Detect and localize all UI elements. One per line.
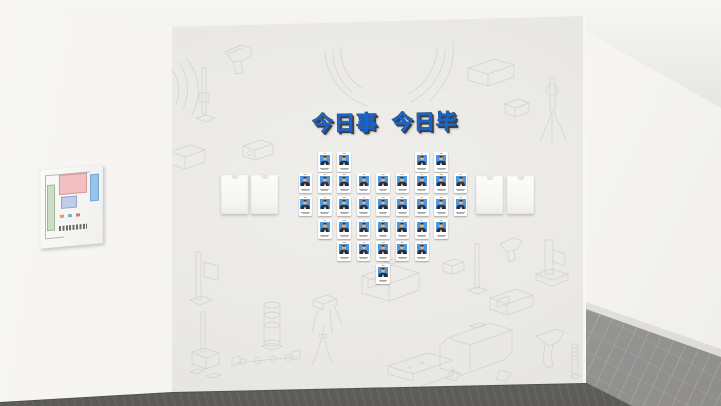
staff-badge-card [415,196,429,216]
sketch-column-machine-right [536,240,568,286]
badge-photo [339,155,349,166]
person-head [342,245,346,250]
badge-text-line [380,213,387,214]
badge-photo [378,222,388,233]
badge-text-line [341,258,348,259]
badge-text-line [418,190,425,191]
badge-photo [339,199,349,210]
person-shirt [343,251,345,254]
badge-photo [320,199,330,210]
staff-badge-card [396,219,410,239]
staff-badge-card [337,241,351,261]
badge-photo [417,222,427,233]
plan-legend-dot [68,214,72,217]
person-head [400,177,404,182]
badge-text-line [399,236,406,237]
sketch-scanner-gun-bottom [536,329,564,368]
person-head [381,200,385,205]
person-head [381,223,385,228]
person-head [400,223,404,228]
sketch-printer-box [362,259,419,301]
staff-badge-card [357,173,371,193]
person-shirt [382,183,384,186]
person-head [439,223,443,228]
person-head [400,200,404,205]
badge-text-line [399,213,406,214]
sketch-linkage-mechanism [232,350,300,366]
person-head [303,177,307,182]
badge-photo [378,267,388,278]
staff-badge-card [434,173,448,193]
badge-photo [397,176,407,187]
person-shirt [382,251,384,254]
badge-text-line [380,258,387,259]
badge-text-line [302,190,309,191]
person-shirt [382,229,384,232]
badge-photo [300,176,310,187]
badge-text-line [360,236,367,237]
person-head [362,200,366,205]
badge-photo [378,199,388,210]
badge-photo [378,244,388,255]
person-shirt [460,183,462,186]
person-shirt [421,229,423,232]
badge-photo [320,155,330,166]
badge-photo [397,199,407,210]
sketch-pole-t-stand [468,244,487,294]
badge-photo [436,176,446,187]
staff-badge-card [318,219,332,239]
person-head [400,245,404,250]
badge-text-line [399,190,406,191]
staff-badge-card [357,241,371,261]
plan-legend-dot [76,214,80,217]
badge-photo [436,199,446,210]
person-head [420,156,424,161]
badge-photo [417,244,427,255]
badge-text-line [321,213,328,214]
badge-text-line [360,190,367,191]
staff-badge-card [318,152,332,172]
sketch-column-machine-far-left [190,252,218,305]
showroom-scene: 今日事 今日毕 [0,0,721,406]
person-shirt [401,251,403,254]
staff-badge-card [415,173,429,193]
badge-photo [359,244,369,255]
staff-badge-card [434,152,448,172]
person-head [323,200,327,205]
person-shirt [304,206,306,209]
badge-text-line [418,236,425,237]
person-shirt [343,183,345,186]
person-head [323,177,327,182]
sketch-scanner-gun-right [500,238,522,262]
staff-badge-card [337,173,351,193]
sketch-big-case [440,323,512,382]
person-shirt [324,183,326,186]
sketch-generator-box [490,289,533,315]
person-shirt [440,229,442,232]
badge-photo [397,222,407,233]
person-head [323,156,327,161]
badge-photo [436,222,446,233]
person-shirt [363,206,365,209]
person-head [439,200,443,205]
person-shirt [363,183,365,186]
person-head [420,200,424,205]
person-shirt [363,251,365,254]
sketch-handheld-scanner-top [225,45,252,74]
staff-badge-card [337,219,351,239]
badge-text-line [380,281,387,282]
staff-badge-card [415,152,429,172]
staff-badge-card [396,173,410,193]
staff-badge-card [415,219,429,239]
plan-caption-text [59,224,87,231]
badge-photo [339,244,349,255]
sketch-tripod-instrument-right [540,78,566,142]
plan-pink-zone [59,173,87,195]
staff-badge-card [376,241,390,261]
staff-badge-card [318,196,332,216]
badge-text-line [418,169,425,170]
person-head [342,177,346,182]
person-shirt [382,274,384,277]
badge-text-line [457,190,464,191]
badge-text-line [418,213,425,214]
person-shirt [421,183,423,186]
staff-badge-card [337,196,351,216]
badge-photo [300,199,310,210]
badge-text-line [360,213,367,214]
badge-photo [320,222,330,233]
badge-text-line [438,190,445,191]
sketch-cylinder-coil [262,302,282,350]
badge-text-line [302,213,309,214]
evacuation-floor-plan-frame [40,164,103,249]
person-shirt [401,183,403,186]
person-head [439,177,443,182]
badge-text-line [457,213,464,214]
staff-badge-card [357,219,371,239]
staff-badge-card [357,196,371,216]
plan-blue-room [61,196,77,209]
sketch-small-box [443,259,464,274]
person-shirt [421,251,423,254]
badge-photo [417,199,427,210]
sketch-tripod-bottom [312,324,332,366]
person-head [420,245,424,250]
badge-photo [359,176,369,187]
badge-photo [417,155,427,166]
person-head [342,200,346,205]
person-head [323,223,327,228]
person-shirt [440,162,442,165]
person-head [459,200,463,205]
sketch-flat-case [388,353,453,389]
staff-badge-card [376,196,390,216]
wall-slogan-title: 今日事 今日毕 [300,106,470,138]
person-head [420,223,424,228]
person-shirt [324,162,326,165]
person-shirt [440,183,442,186]
staff-badge-card [376,264,390,284]
person-head [459,177,463,182]
person-shirt [363,229,365,232]
plan-legend-dot [60,215,64,218]
person-shirt [401,206,403,209]
badge-photo [339,176,349,187]
person-shirt [324,229,326,232]
staff-badge-card [415,241,429,261]
person-shirt [382,206,384,209]
person-head [362,177,366,182]
badge-text-line [418,258,425,259]
person-shirt [421,162,423,165]
sketch-screw-pole [570,344,581,379]
person-head [381,245,385,250]
staff-badge-card [376,219,390,239]
blank-display-panel [221,175,248,214]
person-head [381,268,385,273]
blank-display-panel [476,176,503,214]
badge-photo [456,176,466,187]
staff-badge-card [299,173,313,193]
plan-blue-strip [90,173,99,201]
sketch-iso-box-left [170,145,205,169]
person-shirt [401,229,403,232]
badge-text-line [341,190,348,191]
person-head [439,156,443,161]
person-head [362,223,366,228]
badge-text-line [341,213,348,214]
person-shirt [343,206,345,209]
person-shirt [324,206,326,209]
staff-badge-card [454,196,468,216]
badge-text-line [438,213,445,214]
person-head [362,245,366,250]
badge-photo [397,244,407,255]
sketch-camera-tripod [312,295,342,333]
sketch-top-right-box [468,59,514,86]
badge-photo [417,176,427,187]
staff-badge-card [299,196,313,216]
staff-badge-card [434,196,448,216]
person-head [420,177,424,182]
badge-text-line [341,236,348,237]
plan-wall-line [45,236,64,239]
person-shirt [460,206,462,209]
sketch-device-right-mid [505,99,529,117]
staff-badge-card [434,219,448,239]
badge-photo [378,176,388,187]
sketch-arc-rings-left [172,58,198,115]
sketch-stand-with-box-left [190,312,221,378]
badge-text-line [341,169,348,170]
blank-display-panel [251,175,278,214]
staff-badge-card [454,173,468,193]
sketch-pole-stand-left [196,68,215,122]
badge-text-line [399,258,406,259]
person-shirt [421,206,423,209]
person-head [303,200,307,205]
badge-text-line [380,190,387,191]
badge-text-line [380,236,387,237]
person-head [342,156,346,161]
badge-photo [359,199,369,210]
person-shirt [304,183,306,186]
badge-photo [456,199,466,210]
badge-text-line [321,169,328,170]
staff-badge-card [396,196,410,216]
staff-badge-card [318,173,332,193]
person-shirt [440,206,442,209]
person-shirt [343,229,345,232]
plan-green-zone [47,184,55,231]
badge-text-line [438,169,445,170]
badge-photo [320,176,330,187]
person-head [342,223,346,228]
staff-badge-card [376,173,390,193]
badge-text-line [321,190,328,191]
badge-photo [359,222,369,233]
badge-photo [339,222,349,233]
staff-badge-card [396,241,410,261]
badge-text-line [360,258,367,259]
staff-badge-card [337,152,351,172]
blank-display-panel [507,176,534,214]
badge-photo [436,155,446,166]
person-shirt [343,162,345,165]
person-head [381,177,385,182]
sketch-projector-mid [243,140,273,160]
badge-text-line [321,236,328,237]
plan-wall-line [45,175,46,238]
badge-text-line [438,236,445,237]
